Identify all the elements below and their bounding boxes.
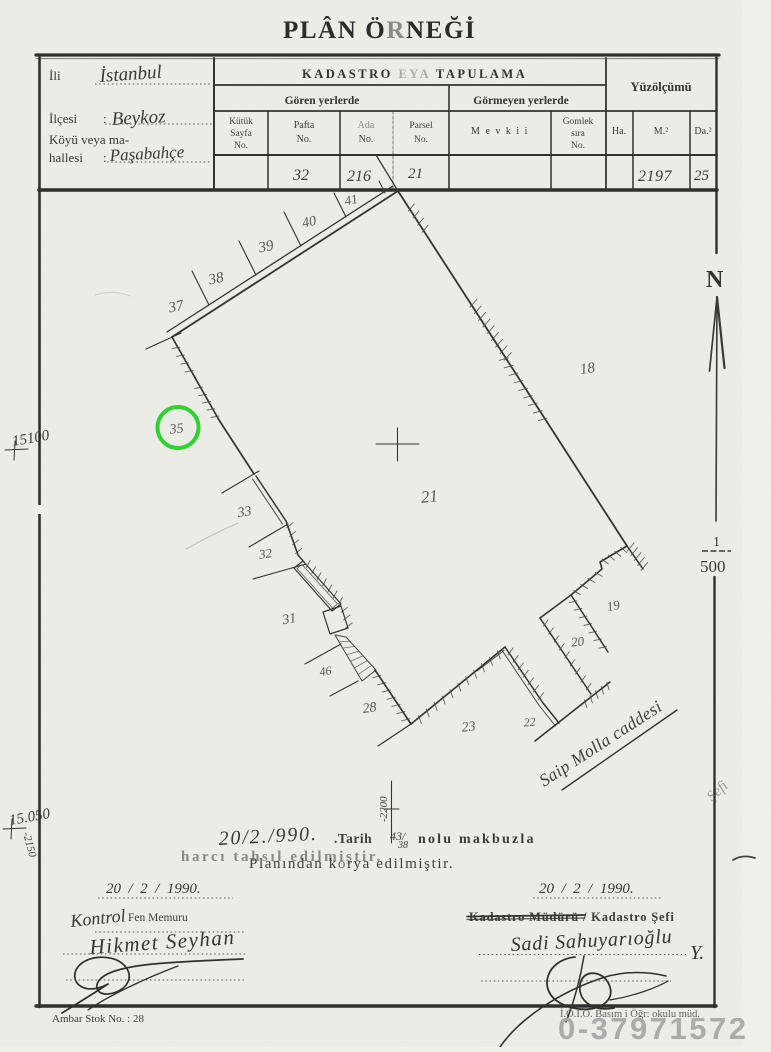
svg-text:20 / 2 / 1990.: 20 / 2 / 1990. [106, 881, 201, 897]
svg-text:2197: 2197 [638, 168, 673, 185]
svg-text:No.: No. [297, 134, 312, 145]
svg-text:No.: No. [571, 141, 585, 151]
svg-text:No.: No. [234, 141, 248, 151]
svg-text:Yüzölçümü: Yüzölçümü [630, 80, 691, 94]
svg-text:1: 1 [713, 535, 720, 550]
svg-text:23: 23 [461, 719, 476, 735]
svg-text:-2200: -2200 [378, 796, 390, 822]
svg-text:28: 28 [362, 700, 378, 717]
svg-text:32: 32 [292, 167, 309, 184]
svg-text:0-37971572: 0-37971572 [558, 1011, 749, 1046]
svg-text:Pafta: Pafta [294, 120, 315, 131]
svg-text:35: 35 [168, 421, 184, 437]
svg-text:21: 21 [420, 486, 439, 507]
svg-text:31: 31 [280, 611, 297, 628]
svg-text:Görmeyen yerlerde: Görmeyen yerlerde [473, 95, 568, 107]
svg-text:İlçesi: İlçesi [49, 111, 78, 126]
svg-text:Da.²: Da.² [694, 126, 711, 137]
svg-text:Gomlek: Gomlek [563, 117, 594, 127]
svg-text:Ada: Ada [358, 120, 375, 131]
svg-text:46: 46 [319, 663, 333, 679]
svg-text:216: 216 [347, 168, 371, 185]
svg-text:hallesi: hallesi [49, 150, 83, 165]
svg-text:20 / 2 / 1990.: 20 / 2 / 1990. [539, 881, 634, 897]
svg-text:25: 25 [694, 168, 710, 184]
svg-text:Ambar Stok No. : 28: Ambar Stok No. : 28 [52, 1013, 144, 1025]
svg-text:M e v k i i: M e v k i i [471, 126, 529, 137]
svg-text:Kütük: Kütük [229, 117, 253, 127]
svg-text:No.: No. [359, 134, 374, 145]
svg-text:Gören yerlerde: Gören yerlerde [285, 95, 360, 107]
svg-text:.Tarih: .Tarih [334, 831, 372, 846]
svg-text:Y.: Y. [690, 942, 704, 964]
svg-text:Fen Memuru: Fen Memuru [128, 912, 188, 924]
svg-text:Beykoz: Beykoz [111, 106, 166, 130]
svg-text:500: 500 [700, 557, 726, 576]
svg-text:38: 38 [397, 840, 408, 851]
svg-text:Ha.: Ha. [612, 126, 626, 137]
svg-text::: : [103, 150, 107, 165]
svg-text:PLÂN ÖRNEĞİ: PLÂN ÖRNEĞİ [283, 15, 476, 44]
svg-text:22: 22 [523, 714, 536, 729]
svg-text:32: 32 [257, 545, 273, 562]
svg-text:M.²: M.² [654, 126, 668, 137]
svg-text:İli: İli [49, 68, 61, 83]
svg-text:İstanbul: İstanbul [98, 62, 163, 87]
svg-text:Kadastro Müdürü / Kadastro Şef: Kadastro Müdürü / Kadastro Şefi [469, 910, 675, 924]
svg-text:No.: No. [414, 135, 428, 145]
svg-text:nolu makbuzla: nolu makbuzla [418, 832, 536, 847]
svg-text:KADASTRO EYA TAPULAMA: KADASTRO EYA TAPULAMA [302, 67, 527, 81]
svg-text:21: 21 [408, 166, 423, 182]
svg-text:Parsel: Parsel [409, 121, 433, 131]
svg-text:N: N [706, 267, 724, 293]
svg-text:Sayfa: Sayfa [230, 128, 252, 139]
svg-text:20: 20 [570, 633, 585, 649]
svg-text:33: 33 [236, 504, 253, 521]
svg-text:18: 18 [579, 360, 597, 378]
svg-text:Planından korya edilmiştir.: Planından korya edilmiştir. [249, 856, 454, 872]
svg-text:sıra: sıra [571, 129, 586, 139]
